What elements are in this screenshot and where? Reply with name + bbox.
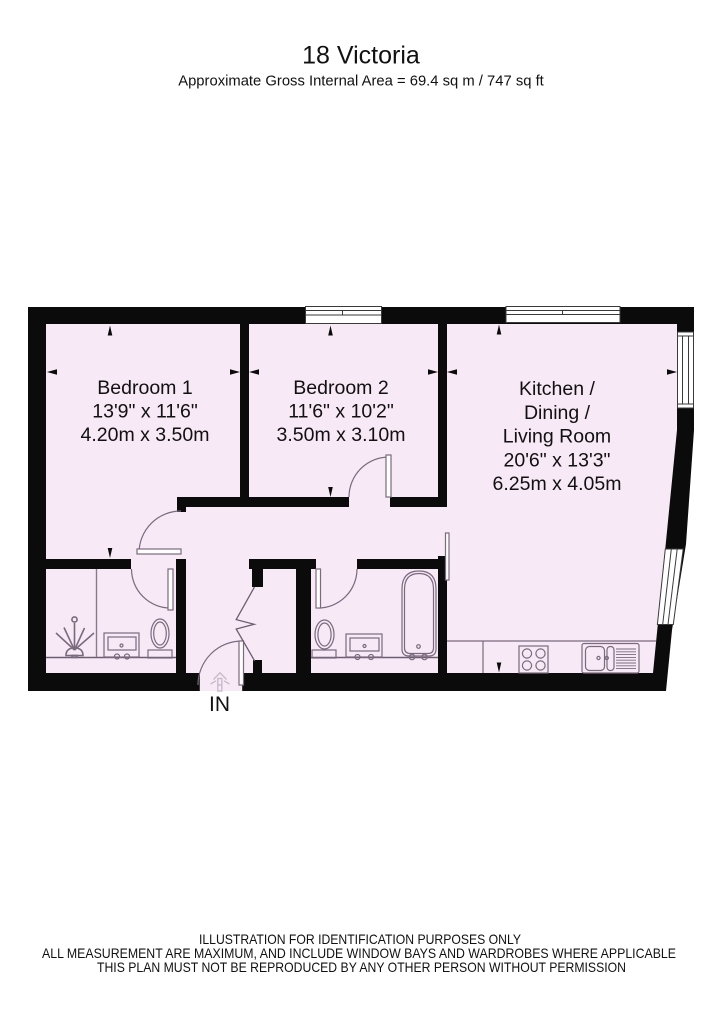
svg-text:3.50m x 3.10m: 3.50m x 3.10m (277, 424, 406, 446)
svg-text:Bedroom 1: Bedroom 1 (97, 377, 192, 399)
svg-text:Approximate Gross Internal Are: Approximate Gross Internal Area = 69.4 s… (178, 74, 544, 90)
svg-text:Bedroom 2: Bedroom 2 (293, 377, 388, 399)
svg-text:11'6" x 10'2": 11'6" x 10'2" (288, 401, 394, 423)
svg-text:Dining /: Dining / (524, 402, 591, 424)
svg-text:4.20m x 3.50m: 4.20m x 3.50m (81, 424, 210, 446)
svg-text:18 Victoria: 18 Victoria (302, 42, 420, 70)
svg-text:20'6" x 13'3": 20'6" x 13'3" (504, 449, 611, 471)
svg-text:Kitchen /: Kitchen / (519, 378, 595, 400)
svg-text:IN: IN (209, 693, 230, 716)
svg-text:Living Room: Living Room (503, 426, 611, 448)
svg-text:13'9" x 11'6": 13'9" x 11'6" (92, 401, 198, 423)
svg-text:THIS PLAN MUST NOT BE REPRODUC: THIS PLAN MUST NOT BE REPRODUCED BY ANY … (97, 959, 626, 975)
svg-text:6.25m x 4.05m: 6.25m x 4.05m (493, 473, 622, 495)
